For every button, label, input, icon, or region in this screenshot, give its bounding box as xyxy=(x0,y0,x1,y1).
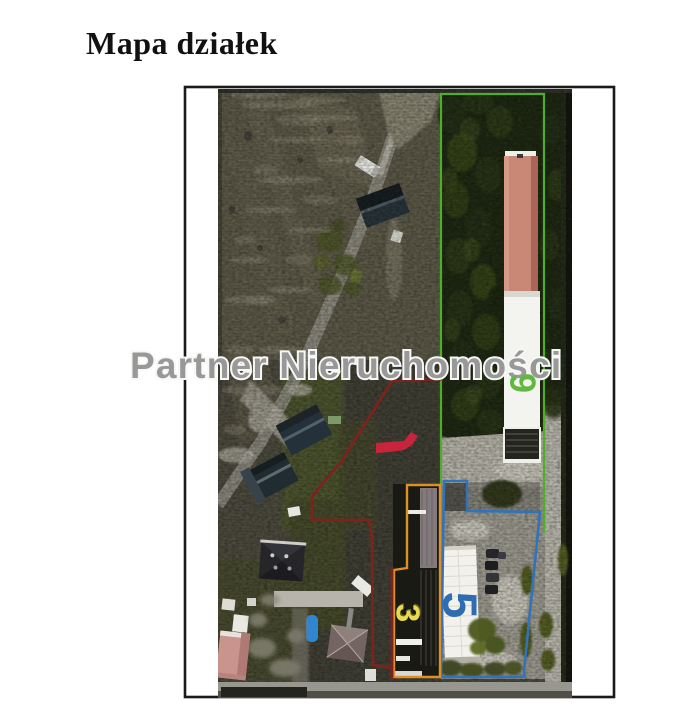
svg-text:6: 6 xyxy=(503,373,544,393)
svg-text:Mapa działek: Mapa działek xyxy=(86,25,278,61)
svg-text:Partner Nieruchomości: Partner Nieruchomości xyxy=(130,345,562,386)
svg-text:5: 5 xyxy=(433,592,486,619)
svg-text:3: 3 xyxy=(390,604,427,622)
